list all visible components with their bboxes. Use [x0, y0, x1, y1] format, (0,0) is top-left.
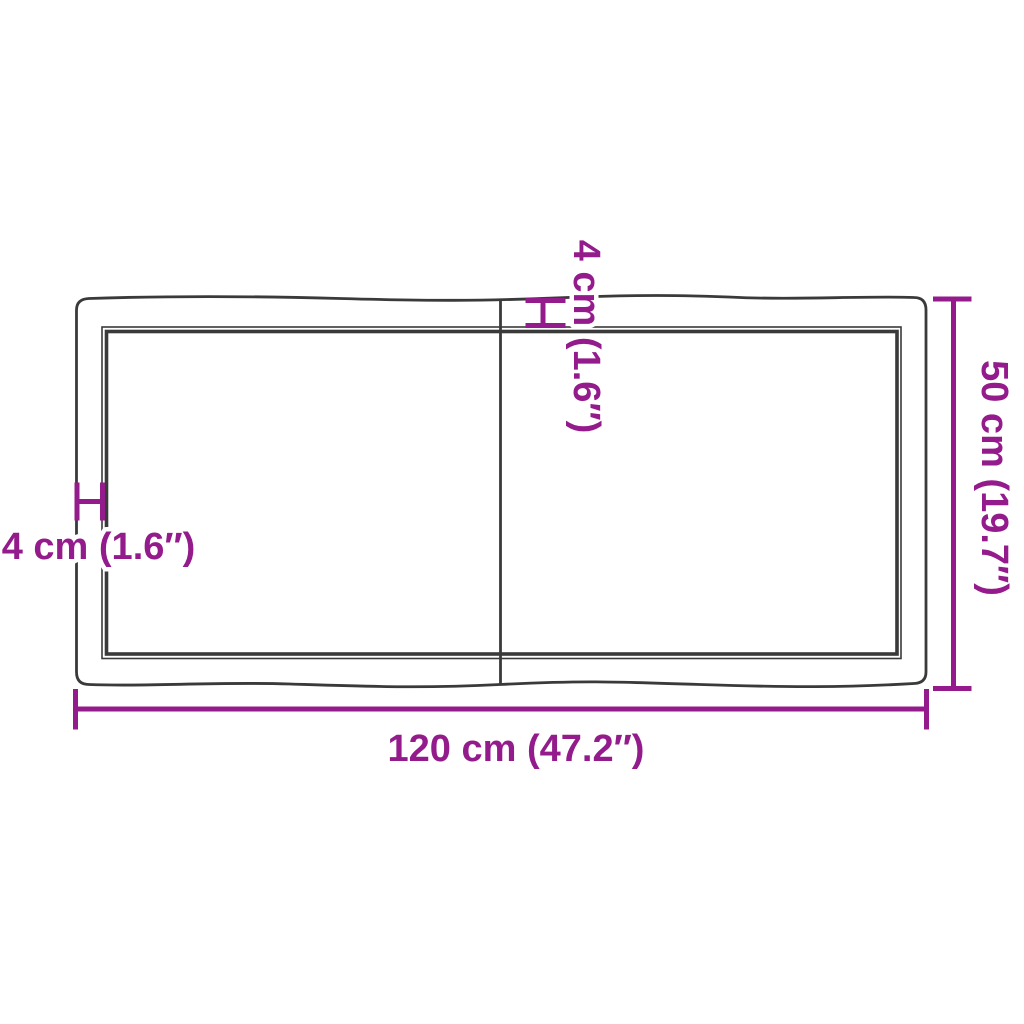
height-dimension-label: 50 cm (19.7″)	[973, 360, 1015, 596]
width-dimension-line	[73, 689, 929, 730]
side-thickness-label: 4 cm (1.6″)	[2, 526, 196, 568]
dimension-diagram: 120 cm (47.2″) 50 cm (19.7″) 4 cm (1.6″)…	[0, 0, 1024, 1024]
height-dimension-line	[933, 297, 972, 692]
width-dimension-label: 120 cm (47.2″)	[388, 728, 645, 770]
diagram-canvas: 120 cm (47.2″) 50 cm (19.7″) 4 cm (1.6″)…	[0, 0, 1024, 1024]
top-thickness-label: 4 cm (1.6″)	[565, 240, 607, 434]
